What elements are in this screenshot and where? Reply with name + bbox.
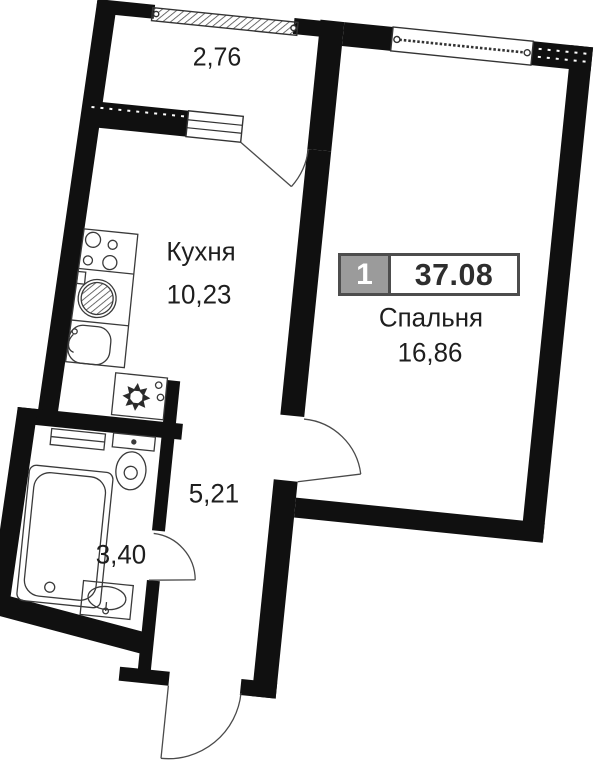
hall-area-label: 5,21 <box>189 479 239 510</box>
hall-step-wall <box>119 667 170 686</box>
unit-number: 1 <box>341 256 391 293</box>
bedroom-top-wall-left <box>342 22 393 51</box>
kitchen-window-icon <box>186 111 243 142</box>
bedroom-name-label: Спальня <box>379 303 483 334</box>
kitchen-top-wall <box>86 101 188 137</box>
bath-area-label: 3,40 <box>96 540 146 571</box>
balcony-glazing-icon <box>152 8 299 36</box>
floor-plan-page: 2,76 Кухня 10,23 Спальня 16,86 5,21 3,40… <box>0 0 600 761</box>
unit-total-area: 37.08 <box>392 256 515 293</box>
bedroom-window-icon <box>391 27 534 65</box>
bathroom-right-wall-lower <box>138 580 160 672</box>
bathroom-door-icon <box>149 533 200 584</box>
bathroom-top-wall <box>16 407 183 440</box>
entry-door-icon <box>161 686 241 761</box>
kitchen-area-label: 10,23 <box>167 280 232 311</box>
bedroom-area-label: 16,86 <box>398 338 463 369</box>
bathroom-right-wall-upper <box>152 380 180 532</box>
balcony-door-icon <box>237 142 309 188</box>
unit-area-badge: 1 37.08 <box>338 253 520 296</box>
bedroom-bottom-wall <box>294 498 545 543</box>
bedroom-left-wall-upper <box>280 149 331 417</box>
washbasin-icon <box>80 581 133 620</box>
bedroom-left-wall-lower <box>252 479 298 698</box>
toilet-icon <box>108 433 155 492</box>
shelf-icon <box>50 429 105 450</box>
fridge-icon <box>111 373 167 420</box>
kitchen-name-label: Кухня <box>166 237 235 268</box>
bedroom-door-icon <box>298 419 366 488</box>
balcony-area-label: 2,76 <box>193 42 242 73</box>
basin-icon <box>67 324 113 366</box>
balcony-bedroom-wall <box>307 20 344 152</box>
floor-plan-svg <box>0 0 600 761</box>
stove-icon <box>83 232 120 271</box>
right-wall <box>521 45 593 541</box>
